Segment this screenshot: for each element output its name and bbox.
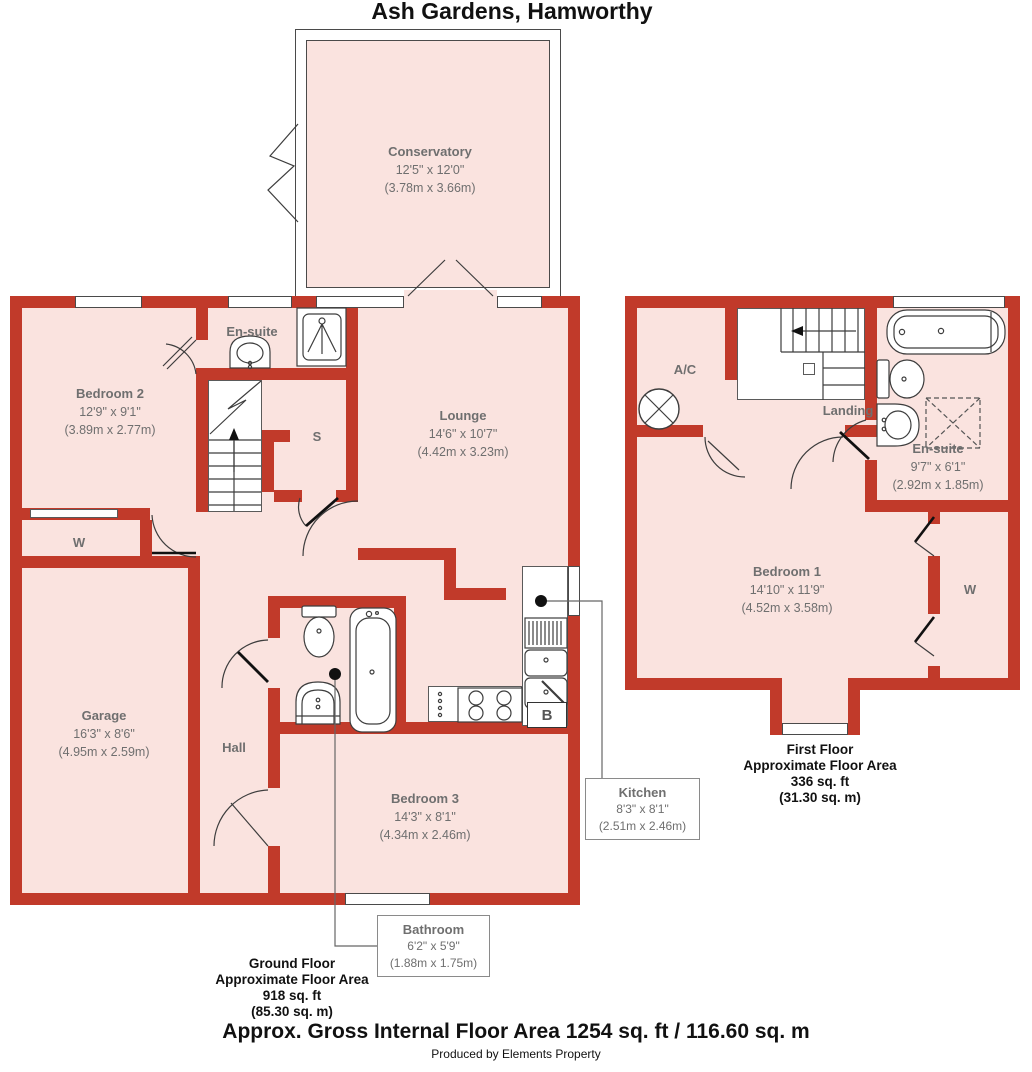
room-name: En-suite (226, 323, 277, 341)
kitchen-counter (428, 686, 522, 722)
room-dims-ft: 14'6" x 10'7" (417, 425, 508, 443)
wall-segment (444, 588, 506, 600)
summary-label: Approximate Floor Area (215, 972, 368, 988)
room-label-hall: Hall (222, 739, 246, 757)
wall-segment (845, 425, 877, 437)
wall-segment (848, 678, 860, 735)
wall-segment (268, 846, 280, 905)
wall-segment (268, 596, 404, 608)
room-label-garage: Garage 16'3" x 8'6" (4.95m x 2.59m) (58, 707, 149, 761)
room-name: Conservatory (384, 143, 475, 161)
wall-segment (196, 308, 208, 340)
wall-segment (274, 490, 302, 502)
wall-segment (860, 678, 1020, 690)
room-dims-ft: 14'3" x 8'1" (379, 808, 470, 826)
window (228, 296, 292, 308)
window (568, 566, 580, 616)
window (893, 296, 1005, 308)
room-label-landing: Landing (823, 402, 874, 420)
room-name: Hall (222, 739, 246, 757)
wall-segment (262, 430, 274, 492)
wall-segment (394, 596, 406, 734)
room-dims-m: (1.88m x 1.75m) (378, 955, 489, 972)
wall-segment (928, 512, 940, 524)
summary-floor: Ground Floor (215, 956, 368, 972)
room-name: Bathroom (378, 921, 489, 938)
summary-label: Approximate Floor Area (743, 758, 896, 774)
first-floor-summary: First Floor Approximate Floor Area 336 s… (743, 742, 896, 806)
wall-segment (188, 556, 200, 905)
stairs-ground-floor (208, 380, 262, 512)
boiler-box: B (527, 702, 567, 728)
wall-segment (625, 425, 703, 437)
wall-segment (865, 500, 1020, 512)
room-name: W (73, 534, 85, 552)
wall-segment (10, 556, 196, 568)
credit-text: Produced by Elements Property (431, 1047, 600, 1061)
window (345, 893, 430, 905)
room-dims-ft: 12'9" x 9'1" (64, 403, 155, 421)
wall-segment (625, 296, 893, 308)
summary-area-m: (85.30 sq. m) (215, 1004, 368, 1020)
room-name: Bedroom 3 (379, 790, 470, 808)
room-dims-m: (2.92m x 1.85m) (892, 476, 983, 494)
room-name: Garage (58, 707, 149, 725)
wall-segment (268, 688, 280, 788)
summary-floor: First Floor (743, 742, 896, 758)
wall-segment (346, 308, 358, 500)
room-dims-m: (3.78m x 3.66m) (384, 179, 475, 197)
summary-area-m: (31.30 sq. m) (743, 790, 896, 806)
room-name: S (313, 428, 322, 446)
room-name: Kitchen (586, 784, 699, 801)
wall-segment (1008, 296, 1020, 690)
floorplan-page: Ash Gardens, Hamworthy (0, 0, 1032, 1072)
room-label-store: S (313, 428, 322, 446)
wall-segment (625, 678, 770, 690)
room-name: Bedroom 1 (741, 563, 832, 581)
room-dims-m: (4.34m x 2.46m) (379, 826, 470, 844)
window (316, 296, 404, 308)
room-name: En-suite (892, 440, 983, 458)
room-label-airing-cupboard: A/C (674, 361, 696, 379)
ground-floor-summary: Ground Floor Approximate Floor Area 918 … (215, 956, 368, 1020)
room-dims-ft: 12'5" x 12'0" (384, 161, 475, 179)
room-label-conservatory: Conservatory 12'5" x 12'0" (3.78m x 3.66… (384, 143, 475, 197)
room-name: Lounge (417, 407, 508, 425)
page-title: Ash Gardens, Hamworthy (371, 0, 652, 25)
summary-area-ft: 336 sq. ft (743, 774, 896, 790)
window (782, 723, 848, 735)
wall-segment (725, 308, 737, 380)
wall-segment (196, 372, 208, 512)
wall-segment (292, 296, 316, 308)
room-label-bedroom2: Bedroom 2 12'9" x 9'1" (3.89m x 2.77m) (64, 385, 155, 439)
room-label-wardrobe-ff: W (964, 581, 976, 599)
wall-segment (928, 556, 940, 614)
room-dims-ft: 6'2" x 5'9" (378, 938, 489, 955)
window (497, 296, 542, 308)
stairs-first-floor (737, 308, 865, 400)
kitchen-label-box: Kitchen 8'3" x 8'1" (2.51m x 2.46m) (585, 778, 700, 840)
wall-segment (625, 296, 637, 690)
room-label-ensuite-ff: En-suite 9'7" x 6'1" (2.92m x 1.85m) (892, 440, 983, 494)
stair-post (803, 363, 815, 375)
room-name: W (964, 581, 976, 599)
wall-segment (430, 893, 580, 905)
conservatory-door-opening (404, 290, 497, 308)
summary-area-ft: 918 sq. ft (215, 988, 368, 1004)
room-dims-m: (4.42m x 3.23m) (417, 443, 508, 461)
room-dims-ft: 9'7" x 6'1" (892, 458, 983, 476)
room-label-bedroom3: Bedroom 3 14'3" x 8'1" (4.34m x 2.46m) (379, 790, 470, 844)
room-dims-m: (3.89m x 2.77m) (64, 421, 155, 439)
wall-segment (10, 296, 22, 905)
wall-segment (10, 893, 345, 905)
room-dims-ft: 8'3" x 8'1" (586, 801, 699, 818)
room-name: Bedroom 2 (64, 385, 155, 403)
room-label-bedroom1: Bedroom 1 14'10" x 11'9" (4.52m x 3.58m) (741, 563, 832, 617)
room-dims-m: (2.51m x 2.46m) (586, 818, 699, 835)
window (75, 296, 142, 308)
wall-segment (358, 548, 456, 560)
gross-area-text: Approx. Gross Internal Floor Area 1254 s… (222, 1020, 809, 1044)
room-label-ensuite-gf: En-suite (226, 323, 277, 341)
bathroom-label-box: Bathroom 6'2" x 5'9" (1.88m x 1.75m) (377, 915, 490, 977)
sliding-door (30, 509, 118, 518)
wall-segment (196, 368, 358, 380)
room-dims-ft: 14'10" x 11'9" (741, 581, 832, 599)
room-dims-ft: 16'3" x 8'6" (58, 725, 149, 743)
wall-segment (140, 520, 152, 556)
wall-segment (928, 666, 940, 678)
room-name: A/C (674, 361, 696, 379)
room-dims-m: (4.95m x 2.59m) (58, 743, 149, 761)
wall-segment (142, 296, 228, 308)
wall-segment (770, 678, 782, 735)
room-name: Landing (823, 402, 874, 420)
wall-segment (336, 490, 358, 502)
bay-window-area (782, 678, 848, 723)
room-dims-m: (4.52m x 3.58m) (741, 599, 832, 617)
boiler-label: B (542, 707, 553, 724)
room-label-wardrobe-gf: W (73, 534, 85, 552)
room-label-lounge: Lounge 14'6" x 10'7" (4.42m x 3.23m) (417, 407, 508, 461)
